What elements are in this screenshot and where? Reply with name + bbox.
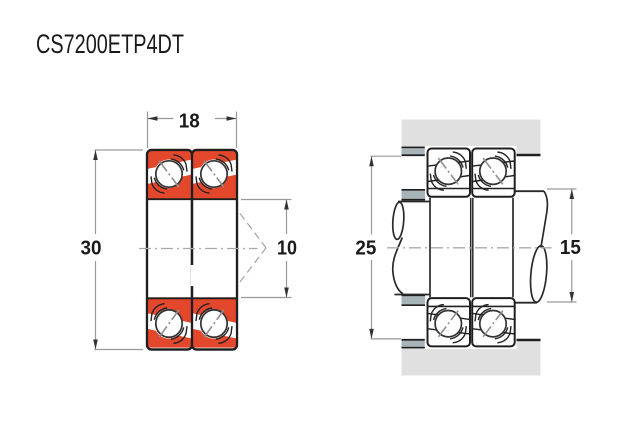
svg-text:10: 10: [277, 238, 297, 260]
svg-text:18: 18: [179, 111, 200, 133]
svg-text:25: 25: [355, 237, 376, 259]
svg-text:15: 15: [560, 237, 581, 259]
svg-text:CS7200ETP4DT: CS7200ETP4DT: [36, 29, 184, 59]
svg-text:30: 30: [81, 238, 102, 260]
